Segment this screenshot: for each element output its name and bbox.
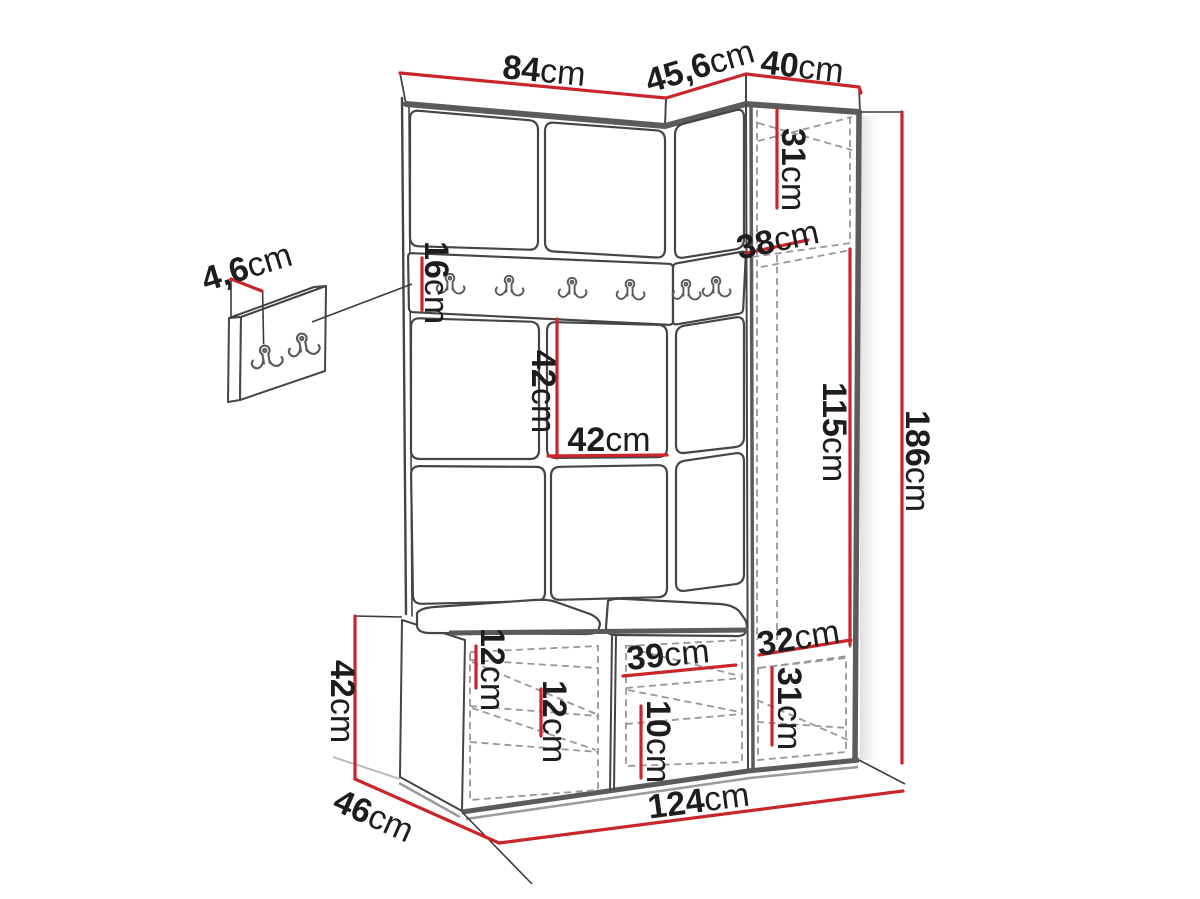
svg-text:12cm: 12cm	[473, 628, 511, 711]
svg-text:39cm: 39cm	[625, 632, 711, 678]
svg-text:31cm: 31cm	[770, 667, 808, 750]
svg-text:186cm: 186cm	[898, 410, 936, 512]
svg-text:42cm: 42cm	[524, 350, 562, 433]
svg-text:10cm: 10cm	[639, 700, 677, 783]
svg-text:84cm: 84cm	[501, 48, 587, 94]
svg-text:31cm: 31cm	[774, 128, 812, 211]
svg-text:42cm: 42cm	[567, 421, 650, 459]
svg-text:115cm: 115cm	[815, 382, 853, 482]
svg-text:42cm: 42cm	[323, 660, 361, 743]
svg-text:12cm: 12cm	[535, 680, 573, 763]
svg-text:16cm: 16cm	[417, 241, 455, 324]
